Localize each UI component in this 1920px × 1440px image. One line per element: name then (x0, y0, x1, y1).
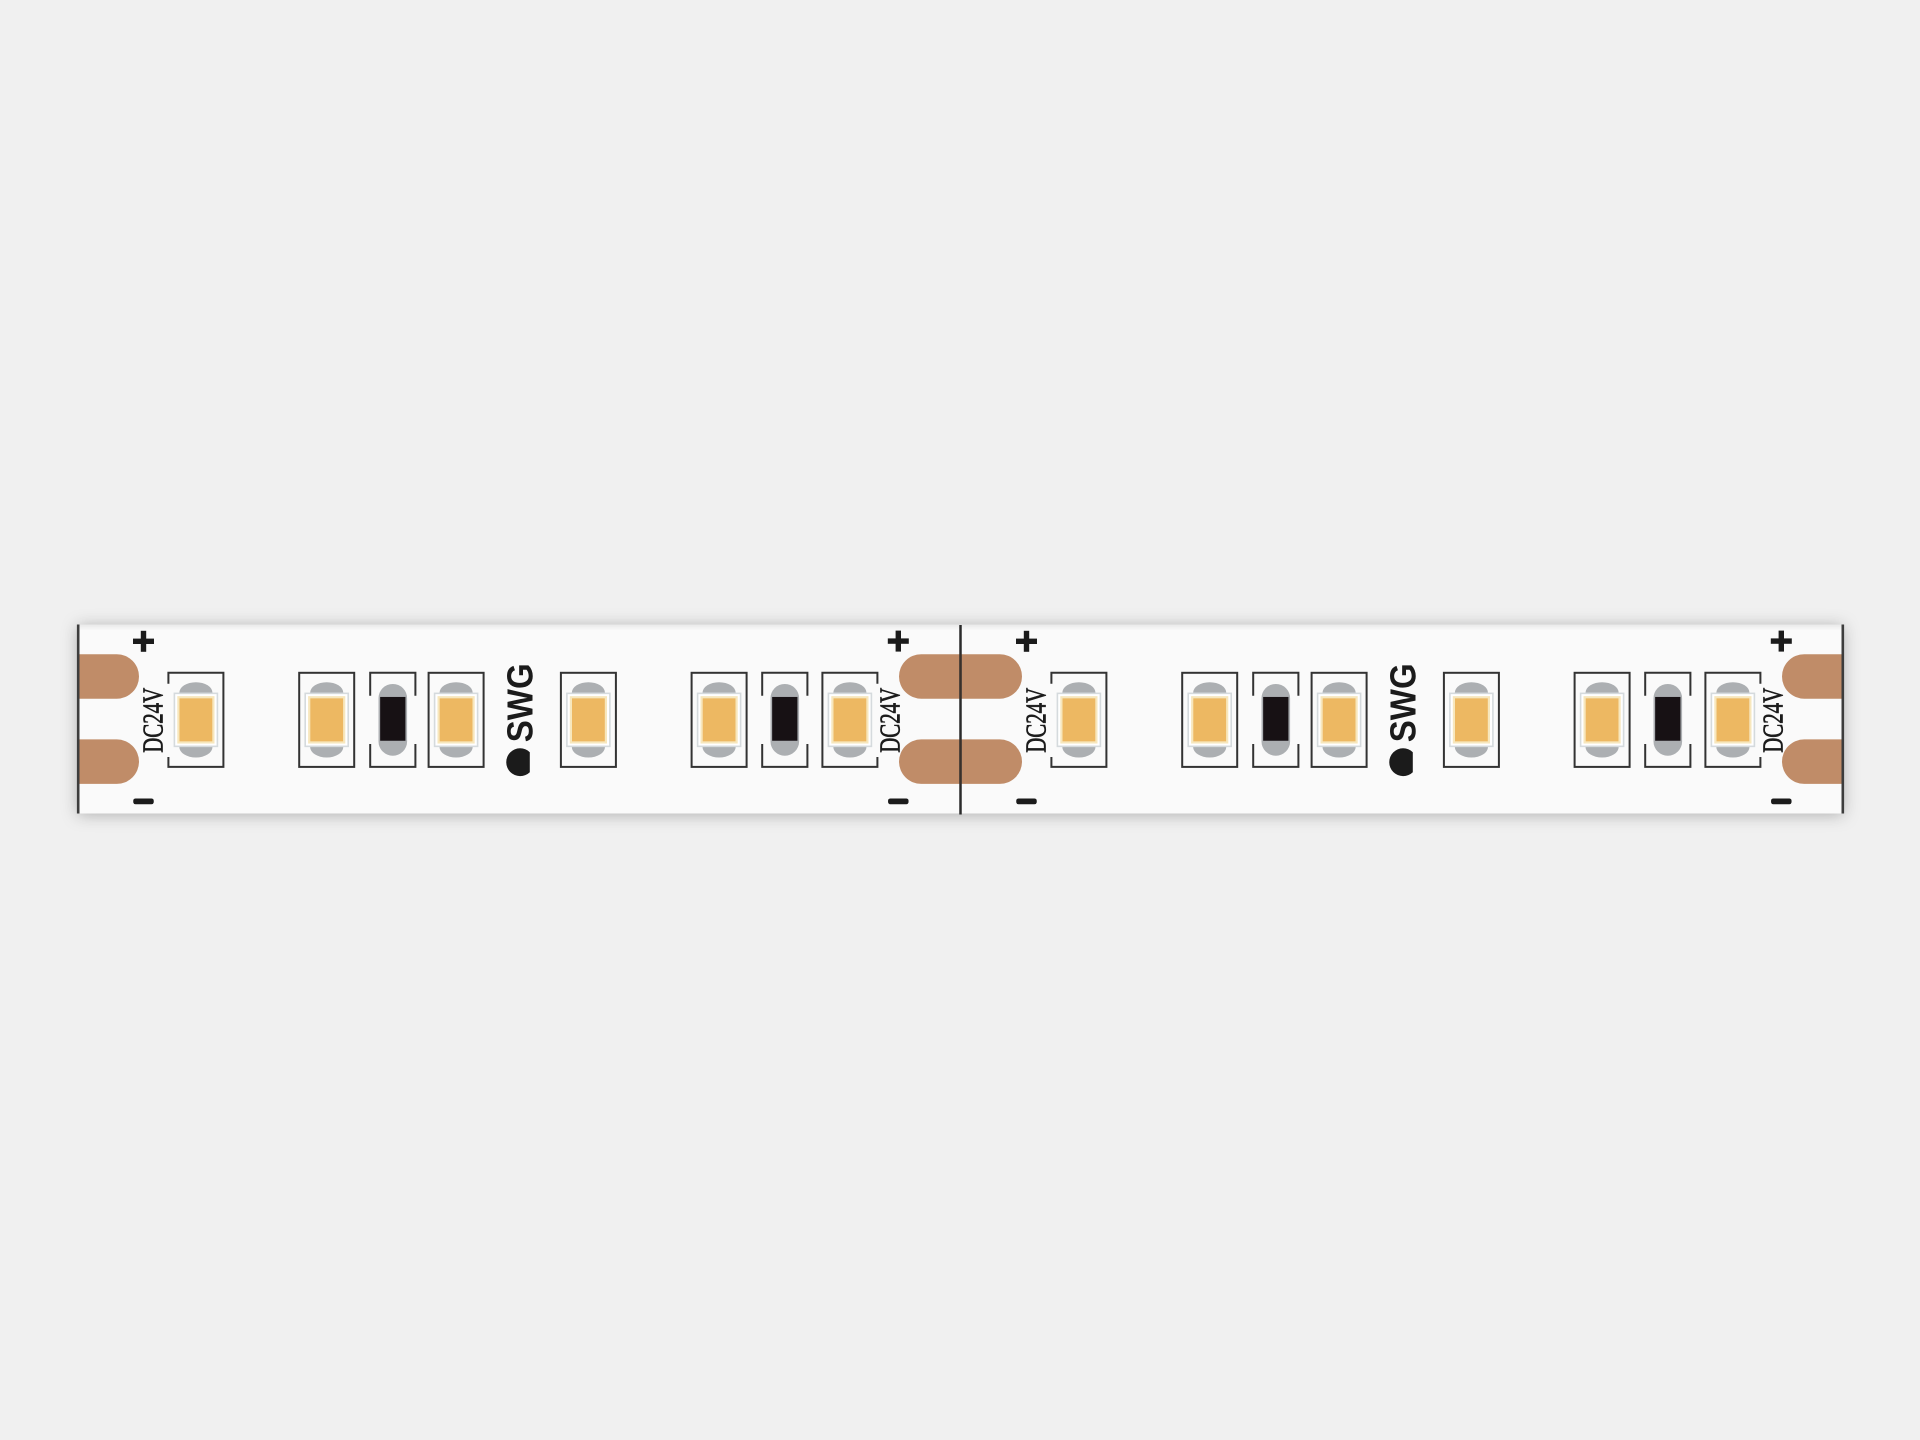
svg-text:SWG: SWG (1383, 663, 1424, 742)
svg-text:SWG: SWG (500, 663, 541, 742)
svg-text:DC24V: DC24V (1759, 688, 1790, 753)
svg-text:DC24V: DC24V (1022, 688, 1053, 753)
svg-text:DC24V: DC24V (139, 688, 170, 753)
svg-text:DC24V: DC24V (876, 688, 907, 753)
